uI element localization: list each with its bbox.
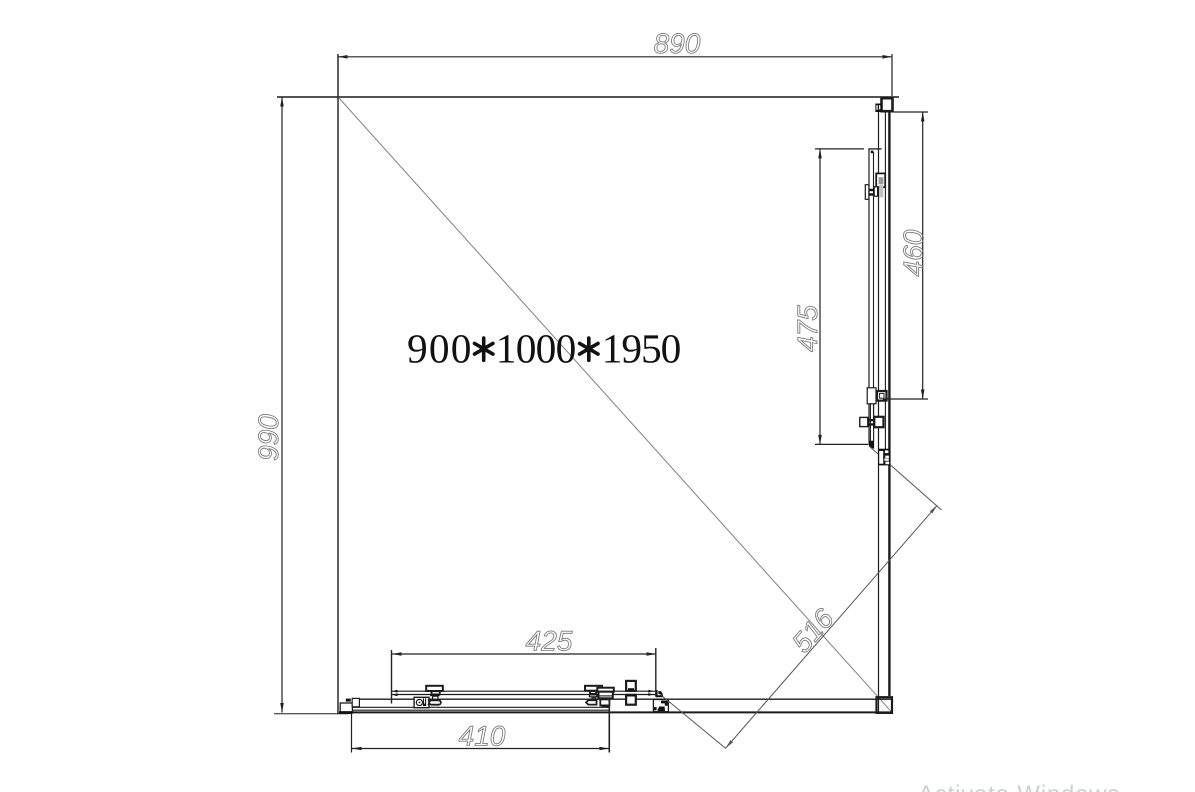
svg-text:900: 900 xyxy=(407,325,472,371)
svg-text:1000: 1000 xyxy=(496,325,577,371)
svg-text:460: 460 xyxy=(898,229,929,276)
svg-text:990: 990 xyxy=(253,414,284,461)
svg-text:516: 516 xyxy=(786,603,840,659)
svg-text:1950: 1950 xyxy=(602,325,682,371)
svg-text:475: 475 xyxy=(792,305,823,352)
svg-text:410: 410 xyxy=(459,721,506,752)
svg-text:Activate Windows: Activate Windows xyxy=(918,781,1120,792)
svg-text:425: 425 xyxy=(526,626,573,657)
svg-text:890: 890 xyxy=(654,28,701,59)
